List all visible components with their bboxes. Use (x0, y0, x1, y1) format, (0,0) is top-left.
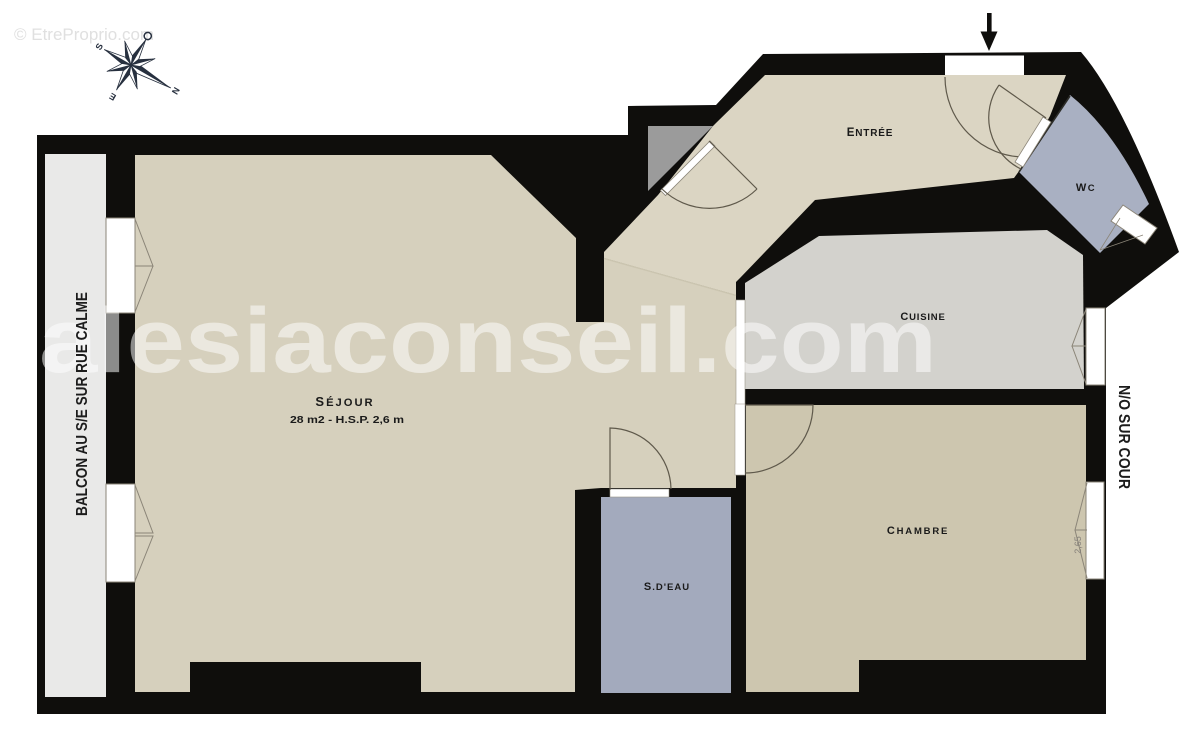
svg-text:S.D'EAU: S.D'EAU (644, 581, 690, 593)
svg-text:ENTRÉE: ENTRÉE (847, 126, 893, 139)
svg-text:alesiaconseil.com: alesiaconseil.com (39, 290, 937, 392)
svg-text:WC: WC (1076, 182, 1096, 194)
svg-text:CUISINE: CUISINE (900, 311, 945, 323)
svg-text:BALCON AU S/E SUR RUE CALME: BALCON AU S/E SUR RUE CALME (74, 292, 91, 516)
svg-text:28 m2 - H.S.P. 2,6 m: 28 m2 - H.S.P. 2,6 m (290, 414, 404, 426)
svg-text:CHAMBRE: CHAMBRE (887, 525, 949, 537)
svg-text:© EtreProprio.com: © EtreProprio.com (14, 25, 154, 44)
svg-text:N/O SUR COUR: N/O SUR COUR (1115, 385, 1132, 489)
svg-text:SÉJOUR: SÉJOUR (315, 394, 374, 409)
svg-text:2,65: 2,65 (1073, 536, 1083, 554)
